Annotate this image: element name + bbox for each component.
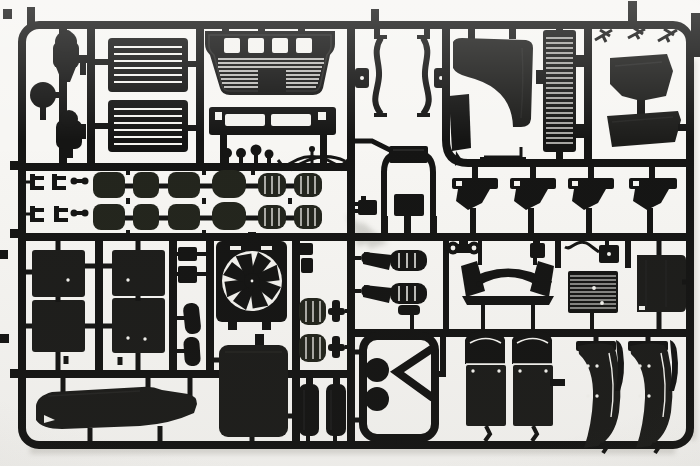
part-quarter-fenders (576, 333, 672, 453)
photo-of-sprue: Photograph of an injection-moulded sprue… (0, 0, 700, 466)
part-ribbed-core (568, 271, 618, 333)
part-step-rail (480, 147, 526, 162)
part-air-springs (355, 250, 427, 333)
part-air-tanks-horizontal (297, 243, 326, 362)
part-junction-plate (394, 194, 424, 237)
sprue-illustration: Photograph of an injection-moulded sprue… (0, 0, 700, 466)
part-fan-shroud (216, 232, 287, 330)
part-tow-shackle (446, 239, 481, 255)
part-air-reservoirs (299, 376, 346, 444)
part-visor-panel (607, 111, 688, 147)
part-toothed-block (353, 196, 377, 215)
part-mirrors (173, 247, 207, 367)
part-a-pillar-trims (353, 25, 448, 115)
part-intake-stack (536, 21, 584, 163)
part-cab-hoop (355, 141, 437, 237)
part-spring-clips (26, 174, 89, 222)
part-wiper-arms (595, 28, 677, 42)
part-hub-drums (93, 167, 322, 237)
part-tank-canister-1 (53, 30, 87, 82)
part-radiator-panel (210, 334, 296, 445)
part-mudguards (465, 330, 565, 441)
part-louver-panel-1 (95, 38, 200, 92)
part-side-skirt (637, 237, 686, 333)
part-front-grille (205, 25, 335, 95)
part-cab-steps (452, 163, 677, 237)
part-louver-panel-2 (95, 100, 200, 152)
part-roof-bumper (36, 378, 197, 444)
part-engine-cover (610, 54, 673, 117)
part-round-disc (30, 82, 62, 120)
part-chassis-bracket (355, 333, 443, 444)
